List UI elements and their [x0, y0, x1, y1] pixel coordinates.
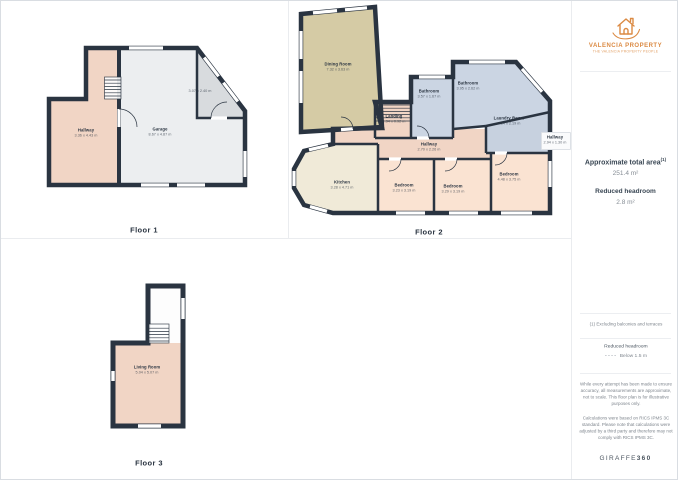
stairs-f1 [105, 77, 122, 99]
divider-vertical-panels [288, 1, 289, 238]
legend-value: Below 1.5 m [620, 352, 647, 358]
room-bedroom3-f2 [491, 153, 550, 213]
room-dims: 3.07 x 2.40 m [189, 89, 212, 94]
room-dims: 2.70 x 2.26 m [418, 147, 441, 152]
label-garage-f1: Garage 8.67 x 4.87 m [149, 127, 172, 137]
legend-row: Below 1.5 m [572, 352, 678, 358]
label-bathroom1-f2: Bathroom 3.57 x 1.67 m [418, 89, 441, 99]
floor2-title: Floor 2 [415, 228, 443, 237]
total-area-title: Approximate total area(1) [572, 157, 678, 166]
label-kitchen-f2: Kitchen 3.28 x 4.71 m [331, 180, 354, 190]
floor3-title: Floor 3 [135, 459, 163, 468]
label-bedroom1-f2: Bedroom 3.23 x 3.19 m [393, 183, 416, 193]
sidebar-divider-2 [580, 313, 671, 314]
label-store-f1: 3.07 x 2.40 m [189, 89, 212, 94]
label-bathroom2-f2: Bathroom 3.95 x 2.62 m [457, 81, 480, 91]
label-hallway-callout-f2: Hallway 2.94 x 1.30 m [544, 135, 567, 145]
reduced-headroom-value: 2.8 m² [572, 199, 678, 206]
room-dims: 3.57 x 1.67 m [418, 94, 441, 99]
room-dims: 8.67 x 4.87 m [149, 132, 172, 137]
total-area-text: Approximate total area [585, 159, 661, 166]
room-dims: 3.36 x 4.43 m [75, 133, 98, 138]
room-dims: 5.04 x 5.07 m [134, 370, 160, 375]
total-area-value: 251.4 m² [572, 170, 678, 177]
brand-tagline: THE VALENCIA PROPERTY PEOPLE [593, 50, 659, 54]
room-dims: 4.48 x 3.75 m [498, 177, 521, 182]
label-hallway-f2: Hallway 2.70 x 2.26 m [418, 142, 441, 152]
footnote-text: (1) Excluding balconies and terraces [577, 321, 675, 328]
floorplan-page: Hallway 3.36 x 4.43 m Garage 8.67 x 4.87… [0, 0, 678, 480]
room-dims: 3.28 x 4.71 m [331, 185, 354, 190]
sidebar-divider-4 [580, 373, 671, 374]
label-living-f3: Living Room 5.04 x 5.07 m [134, 365, 160, 375]
room-dims: 3.29 x 3.19 m [442, 189, 465, 194]
giraffe360-wordmark: GIRAFFE360 [572, 455, 678, 462]
total-area-footnote-mark: (1) [661, 157, 667, 162]
label-dining-f2: Dining Room 7.32 x 3.63 m [324, 62, 351, 72]
brand-logo: VALENCIA PROPERTY THE VALENCIA PROPERTY … [572, 13, 678, 57]
room-dims: 1.94 x 0.92 m [383, 119, 406, 124]
room-dims: 3.95 x 2.62 m [457, 86, 480, 91]
divider-horizontal [1, 238, 571, 239]
room-dims: 7.32 x 3.63 m [324, 67, 351, 72]
room-kitchen-f2 [294, 144, 378, 213]
room-bathroom1-f2 [411, 77, 453, 138]
legend-title: Reduced headroom [572, 343, 678, 349]
floor3-plan [113, 286, 183, 426]
sidebar-divider-1 [580, 71, 671, 72]
label-bedroom2-f2: Bedroom 3.29 x 3.19 m [442, 184, 465, 194]
label-bedroom3-f2: Bedroom 4.48 x 3.75 m [498, 172, 521, 182]
house-logo-icon [608, 13, 644, 41]
floor1-title: Floor 1 [130, 226, 158, 235]
label-laundry-f2: Laundry Room 4.14 x 2.19 m [494, 116, 525, 126]
reduced-headroom-title: Reduced headroom [572, 188, 678, 195]
room-dims: 3.23 x 3.19 m [393, 188, 416, 193]
disclaimer-standard: Calculations were based on RICS IPMS 3C … [577, 415, 675, 441]
stairs-f3 [149, 324, 169, 343]
area-summary: Approximate total area(1) 251.4 m² Reduc… [572, 157, 678, 206]
headroom-legend: Reduced headroom Below 1.5 m [572, 343, 678, 358]
giraffe-text: GIRAFFE [599, 455, 636, 462]
disclaimer-accuracy: While every attempt has been made to ens… [577, 381, 675, 407]
label-landing-f2: Landing 1.94 x 0.92 m [383, 114, 406, 124]
giraffe-360: 360 [637, 455, 652, 462]
floor1-plan [49, 48, 245, 185]
sidebar-divider-3 [580, 338, 671, 339]
room-dims: 2.94 x 1.30 m [544, 140, 567, 145]
info-sidebar: VALENCIA PROPERTY THE VALENCIA PROPERTY … [572, 1, 678, 480]
room-living-f3 [113, 343, 183, 426]
brand-name: VALENCIA PROPERTY [589, 43, 662, 49]
label-hallway-f1: Hallway 3.36 x 4.43 m [75, 128, 98, 138]
room-dims: 4.14 x 2.19 m [494, 121, 525, 126]
dashed-line-icon [605, 355, 616, 356]
